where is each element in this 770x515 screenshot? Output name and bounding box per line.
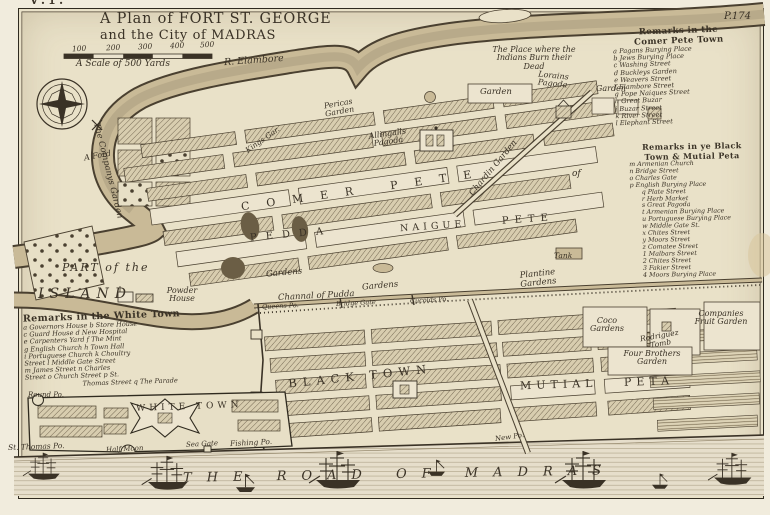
scale-tick-100: 100 [72,44,87,54]
tank-label: Tank [554,252,572,260]
remarks-white-town: Remarks in the White Town a Governors Ho… [23,306,236,389]
lorains-pagoda-icon [556,100,571,118]
volume-number: V.I. [28,0,67,9]
plate-number: P.174 [724,12,751,23]
allingalls-pagoda-icon [420,126,453,151]
island-label: ISLAND [38,287,132,302]
four-brothers-garden-label: Four Brothers Garden [612,350,692,367]
indians-burn-dead-label: The Place where the Indians Burn their D… [486,46,582,71]
remarks-black-town: Remarks in ye Black Town & Mutial Peta m… [625,140,761,280]
map-title-line2: and the City of MADRAS [100,29,276,43]
great-pagoda-icon [393,381,417,398]
mutial-label: MUTIAL [520,378,598,392]
scale-caption: A Scale of 500 Yards [76,60,170,69]
compass-rose-icon [37,79,102,130]
powder-house-label: Powder House [158,287,206,304]
antique-map-plate: V.I. P.174 A Plan of FORT ST. GEORGE and… [0,0,770,515]
scale-tick-500: 500 [200,40,215,50]
scale-tick-300: 300 [138,42,153,52]
round-point-label: Round Po. [28,392,64,399]
peta-label: PETA [624,375,674,388]
of-label: of [572,170,581,179]
pond [425,92,436,103]
scale-tick-400: 400 [170,41,185,51]
scale-bar [64,54,212,59]
companies-fruit-garden-label: Companies Fruit Garden [692,310,750,327]
garden-west-label: Garden [480,88,512,97]
scale-tick-200: 200 [106,43,121,53]
part-of-the-label: PART of the [62,262,149,274]
coco-gardens-label: Coco Gardens [583,317,631,334]
remarks-comer-pete: Remarks in the Comer Pete Town a Pagans … [598,23,761,128]
small-tank [373,264,393,273]
map-title-line1: A Plan of FORT ST. GEORGE [100,12,332,27]
